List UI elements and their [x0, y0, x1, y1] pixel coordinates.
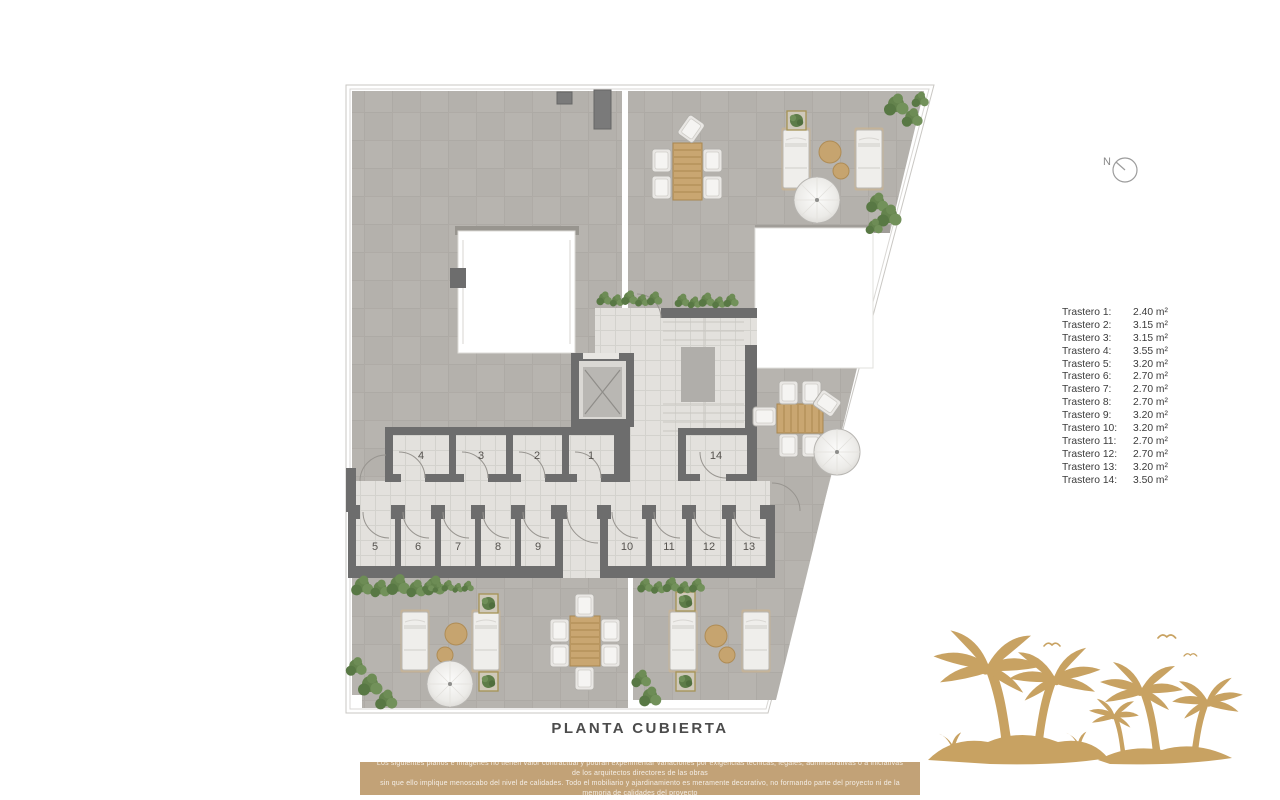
bird-icon [1044, 643, 1060, 646]
parasol [427, 661, 473, 707]
skylight-right [755, 228, 873, 368]
sun-lounger [401, 610, 430, 673]
planter-box [479, 672, 498, 691]
parasol [814, 429, 860, 475]
palm-tree-icon [934, 630, 1042, 750]
parasol [794, 177, 840, 223]
legend-label: Trastero 7: [1062, 384, 1133, 397]
palm-tree-icon [1100, 662, 1183, 754]
palm-island-illustration [928, 630, 1243, 764]
storage-room-label: 1 [588, 450, 594, 462]
storage-room-label: 8 [495, 541, 501, 553]
legend-value: 2.70 m² [1133, 397, 1168, 410]
legend-row: Trastero 2:3.15 m² [1062, 320, 1168, 333]
storage-room-label: 3 [478, 450, 484, 462]
planter-box [479, 594, 498, 613]
legend-label: Trastero 9: [1062, 410, 1133, 423]
legend-label: Trastero 11: [1062, 436, 1133, 449]
legend-value: 3.20 m² [1133, 462, 1168, 475]
storage-room-label: 9 [535, 541, 541, 553]
legend-value: 2.70 m² [1133, 384, 1168, 397]
passage-south [563, 505, 600, 578]
storage-room-label: 13 [743, 541, 755, 553]
legend-label: Trastero 13: [1062, 462, 1133, 475]
legend-label: Trastero 3: [1062, 333, 1133, 346]
north-compass: N [1103, 156, 1137, 182]
legend-row: Trastero 12:2.70 m² [1062, 449, 1168, 462]
storage-room-label: 11 [663, 541, 674, 553]
legend-row: Trastero 9:3.20 m² [1062, 410, 1168, 423]
legend-row: Trastero 7:2.70 m² [1062, 384, 1168, 397]
legend-label: Trastero 10: [1062, 423, 1133, 436]
legend-value: 2.70 m² [1133, 449, 1168, 462]
area-legend: Trastero 1:2.40 m² Trastero 2:3.15 m² Tr… [1062, 307, 1168, 487]
sun-lounger [855, 128, 884, 191]
legend-label: Trastero 5: [1062, 359, 1133, 372]
page: 1 2 3 4 5 6 7 8 9 10 11 12 13 14 [0, 0, 1280, 800]
legend-value: 3.55 m² [1133, 346, 1168, 359]
legend-value: 2.70 m² [1133, 371, 1168, 384]
storage-room-label: 4 [418, 450, 424, 462]
storage-room-label: 14 [710, 450, 722, 462]
bird-icon [1184, 654, 1197, 656]
legend-row: Trastero 5:3.20 m² [1062, 359, 1168, 372]
legend-value: 2.70 m² [1133, 436, 1168, 449]
elevator [571, 353, 634, 427]
legend-label: Trastero 12: [1062, 449, 1133, 462]
legend-value: 3.50 m² [1133, 475, 1168, 488]
legend-value: 3.15 m² [1133, 333, 1168, 346]
legend-row: Trastero 8:2.70 m² [1062, 397, 1168, 410]
planter-box [676, 672, 695, 691]
storage-room-label: 7 [455, 541, 461, 553]
legend-row: Trastero 10:3.20 m² [1062, 423, 1168, 436]
storage-room-label: 6 [415, 541, 421, 553]
skylight-left [458, 231, 575, 353]
bird-icon [1158, 635, 1176, 638]
storage-room-label: 10 [621, 541, 633, 553]
legend-value: 3.15 m² [1133, 320, 1168, 333]
side-table [719, 647, 735, 663]
legend-row: Trastero 14:3.50 m² [1062, 475, 1168, 488]
legend-row: Trastero 6:2.70 m² [1062, 371, 1168, 384]
sun-lounger [472, 610, 501, 673]
legend-label: Trastero 14: [1062, 475, 1133, 488]
legend-label: Trastero 4: [1062, 346, 1133, 359]
legend-label: Trastero 8: [1062, 397, 1133, 410]
disclaimer-bar: Los siguientes planos e imágenes no tien… [360, 762, 920, 795]
storage-room-label: 2 [534, 450, 540, 462]
legend-value: 3.20 m² [1133, 410, 1168, 423]
legend-label: Trastero 6: [1062, 371, 1133, 384]
storage-room-label: 12 [703, 541, 715, 553]
planter-box [787, 111, 806, 130]
side-table [819, 141, 841, 163]
palm-tree-icon [1172, 678, 1243, 756]
legend-row: Trastero 13:3.20 m² [1062, 462, 1168, 475]
legend-row: Trastero 4:3.55 m² [1062, 346, 1168, 359]
disclaimer-line: sin que ello implique menoscabo del nive… [360, 779, 920, 799]
disclaimer-line: Los siguientes planos e imágenes no tien… [360, 759, 920, 779]
legend-value: 3.20 m² [1133, 423, 1168, 436]
legend-row: Trastero 11:2.70 m² [1062, 436, 1168, 449]
side-table [445, 623, 467, 645]
planter-box [676, 592, 695, 611]
storage-room-label: 5 [372, 541, 378, 553]
palm-tree-icon [1089, 699, 1139, 754]
sun-lounger [669, 610, 698, 673]
side-table [833, 163, 849, 179]
sun-lounger [742, 610, 771, 673]
legend-value: 2.40 m² [1133, 307, 1168, 320]
legend-label: Trastero 1: [1062, 307, 1133, 320]
legend-row: Trastero 3:3.15 m² [1062, 333, 1168, 346]
side-table [705, 625, 727, 647]
legend-value: 3.20 m² [1133, 359, 1168, 372]
plan-title: PLANTA CUBIERTA [340, 720, 940, 737]
legend-label: Trastero 2: [1062, 320, 1133, 333]
compass-north-label: N [1103, 156, 1111, 168]
legend-row: Trastero 1:2.40 m² [1062, 307, 1168, 320]
